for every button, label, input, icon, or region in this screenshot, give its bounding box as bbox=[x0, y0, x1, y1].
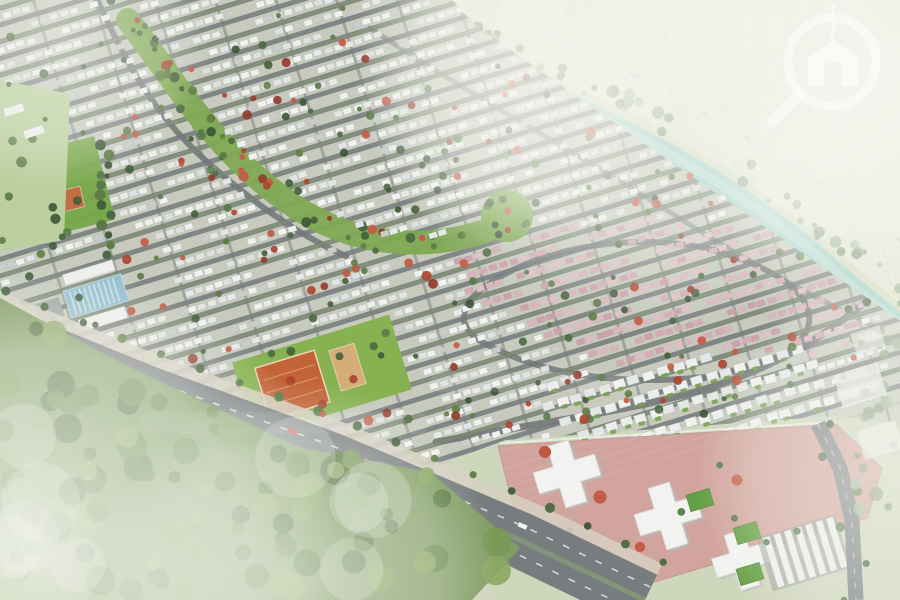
aerial-masterplan-image bbox=[0, 0, 900, 600]
scene-canvas bbox=[0, 0, 900, 600]
haze-overlay bbox=[0, 0, 900, 600]
